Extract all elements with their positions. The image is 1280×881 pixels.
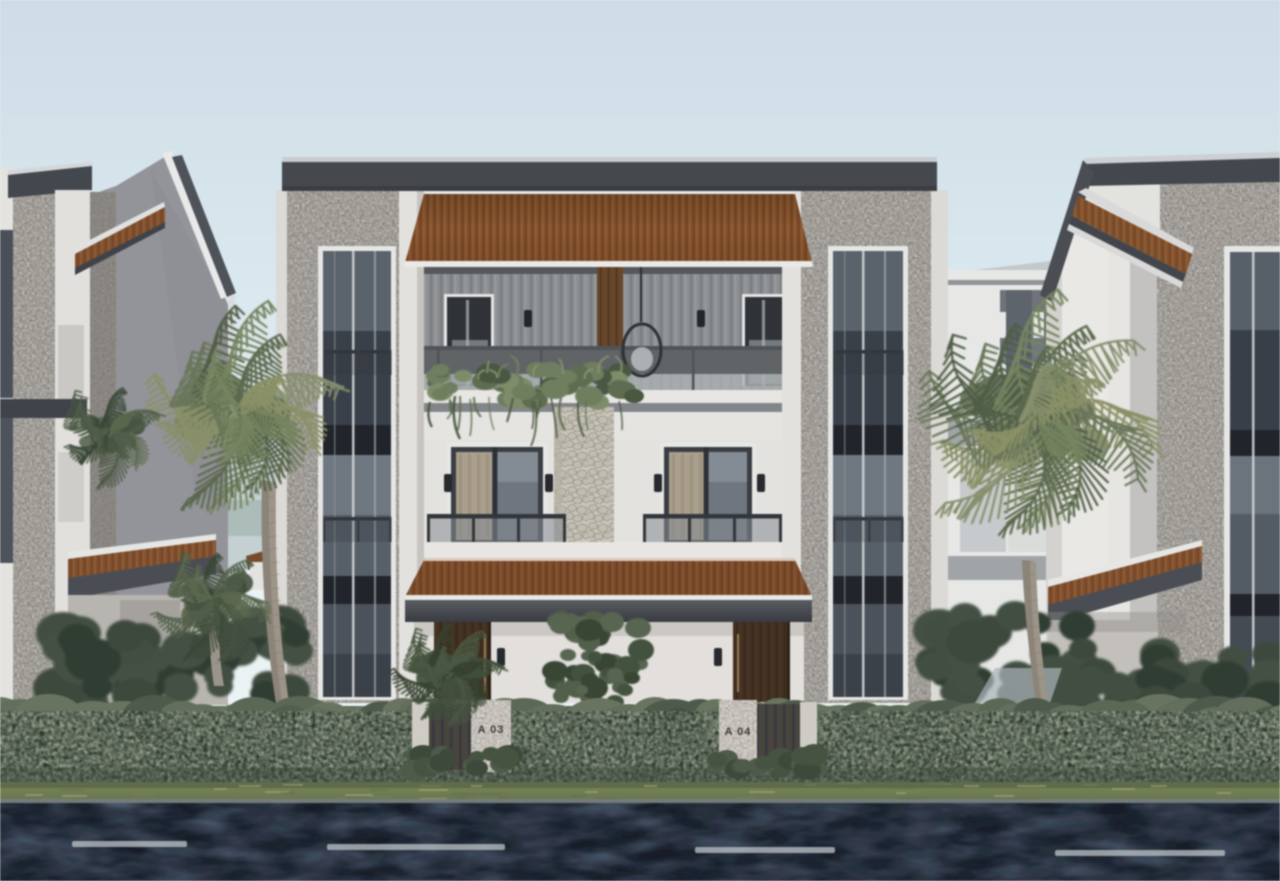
svg-text:A 03: A 03 (478, 724, 505, 736)
svg-text:A 04: A 04 (725, 726, 752, 738)
